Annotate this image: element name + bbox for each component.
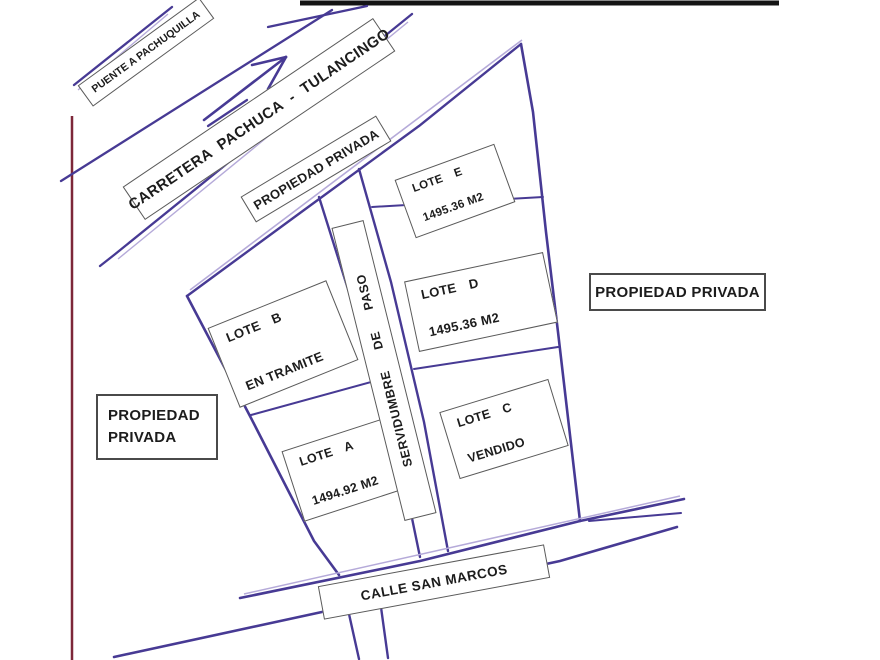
highway-line-3 [268,6,367,27]
divider-lote-d-c [414,347,558,369]
propiedad-left-line1: PROPIEDAD [108,405,216,427]
propiedad-right-text: PROPIEDAD PRIVADA [595,284,760,301]
plat-map: PUENTE A PACHUQUILLA CARRETERA PACHUCA -… [0,0,880,660]
propiedad-privada-right-label: PROPIEDAD PRIVADA [589,273,766,311]
propiedad-privada-left-label: PROPIEDAD PRIVADA [96,394,218,460]
propiedad-left-line2: PRIVADA [108,427,216,449]
